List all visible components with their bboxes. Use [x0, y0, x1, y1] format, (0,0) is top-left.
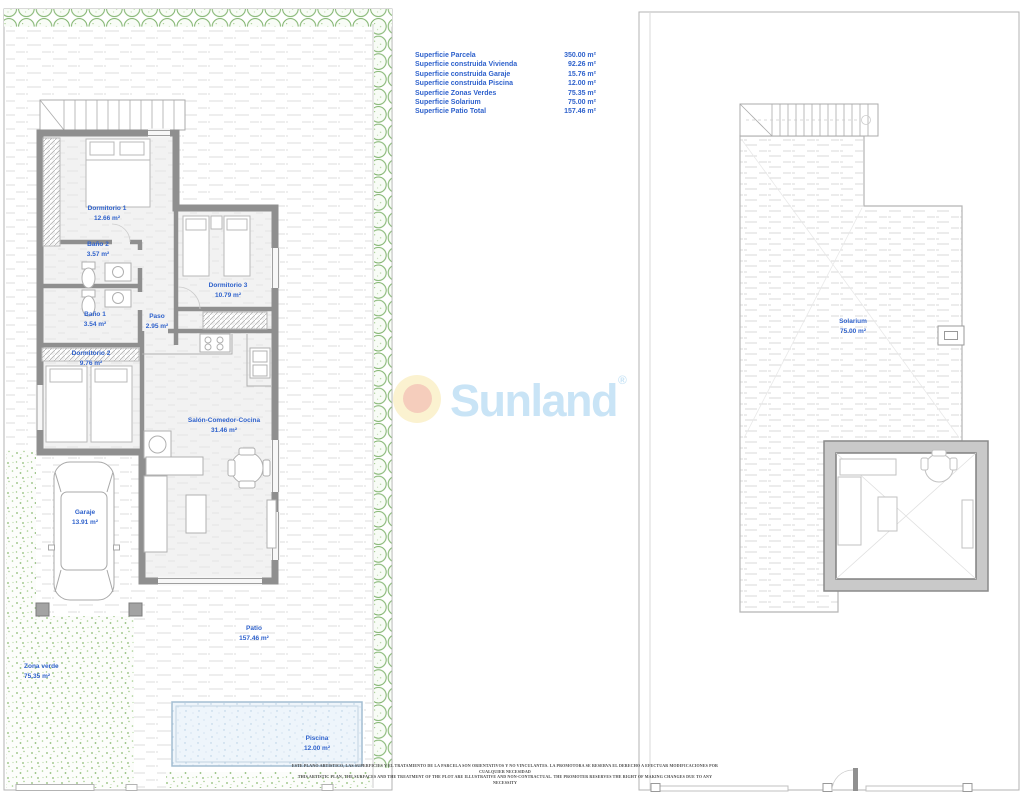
table-row-value: 75.35 m²: [568, 89, 596, 98]
hedge-right: [374, 24, 392, 768]
green-zone: [6, 616, 134, 788]
stairhead-room: [824, 441, 988, 591]
roof-stairs: [740, 104, 878, 136]
room-label-patio: Patio157.46 m²: [239, 624, 269, 643]
table-row-value: 75.00 m²: [568, 98, 596, 107]
disclaimer: ESTE PLANO ARTISTICO, LAS SUPERFICIES Y …: [288, 763, 722, 785]
table-row-label: Superficie construida Vivienda: [415, 60, 517, 69]
room-label-bano-1: Baño 13.54 m²: [84, 310, 106, 329]
hedge-top: [4, 9, 392, 27]
table-row: Superficie Parcela350.00 m²: [415, 51, 596, 60]
floorplan-sheet: Superficie Parcela350.00 m² Superficie c…: [0, 0, 1024, 800]
room-label-zona-verde: Zona verde75.35 m²: [24, 662, 59, 681]
table-row-value: 92.26 m²: [568, 60, 596, 69]
green-strip-left: [6, 450, 36, 618]
table-row-label: Superficie Parcela: [415, 51, 476, 60]
table-row-value: 350.00 m²: [564, 51, 596, 60]
sun-icon: [393, 375, 441, 423]
table-row: Superficie construida Piscina12.00 m²: [415, 79, 596, 88]
room-label-bano-2: Baño 23.57 m²: [87, 240, 109, 259]
table-row-value: 15.76 m²: [568, 70, 596, 79]
table-row-label: Superficie Zonas Verdes: [415, 89, 496, 98]
room-label-dormitorio-1: Dormitorio 112.66 m²: [88, 204, 127, 223]
room-label-salon: Salón-Comedor-Cocina31.46 m²: [188, 416, 260, 435]
room-label-solarium: Solarium75.00 m²: [839, 317, 867, 336]
disclaimer-line-en: THIS ARTISTIC PLAN, THE SURFACES AND THE…: [288, 774, 722, 785]
car: [49, 462, 120, 600]
right-plot: [639, 12, 1019, 792]
sunland-logo: Sunland®: [393, 372, 626, 425]
left-plot: [4, 9, 392, 791]
table-row-label: Superficie construida Garaje: [415, 70, 510, 79]
room-label-dormitorio-3: Dormitorio 310.79 m²: [209, 281, 248, 300]
table-row: Superficie Solarium75.00 m²: [415, 98, 596, 107]
room-label-paso: Paso2.95 m²: [146, 312, 168, 331]
room-label-piscina: Piscina12.00 m²: [304, 734, 330, 753]
table-row-label: Superficie Solarium: [415, 98, 481, 107]
room-label-garaje: Garaje13.91 m²: [72, 508, 98, 527]
table-row-label: Superficie Patio Total: [415, 107, 486, 116]
table-row: Superficie Patio Total157.46 m²: [415, 107, 596, 116]
logo-text: Sunland®: [450, 372, 626, 425]
table-row-value: 157.46 m²: [564, 107, 596, 116]
table-row-label: Superficie construida Piscina: [415, 79, 513, 88]
room-label-dormitorio-2: Dormitorio 29.76 m²: [72, 349, 111, 368]
gate-post: [853, 768, 858, 791]
table-row: Superficie construida Garaje15.76 m²: [415, 70, 596, 79]
entry-stairs: [40, 100, 185, 130]
disclaimer-line-es: ESTE PLANO ARTISTICO, LAS SUPERFICIES Y …: [288, 763, 722, 774]
table-row: Superficie construida Vivienda92.26 m²: [415, 60, 596, 69]
skylight: [938, 326, 964, 345]
table-row: Superficie Zonas Verdes75.35 m²: [415, 89, 596, 98]
surface-table: Superficie Parcela350.00 m² Superficie c…: [415, 51, 596, 117]
registered-mark: ®: [618, 373, 627, 387]
pool: [172, 702, 362, 766]
table-row-value: 12.00 m²: [568, 79, 596, 88]
